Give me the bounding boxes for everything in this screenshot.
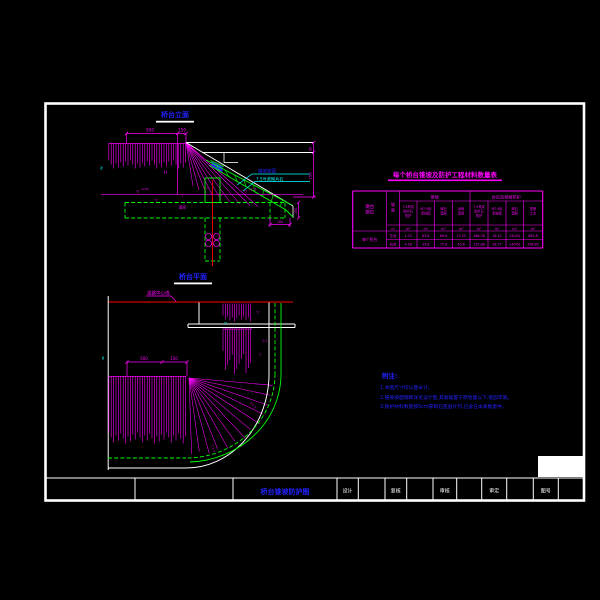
table-value: 15.35	[456, 234, 465, 238]
note-line-1: 1.本图尺寸均以厘米计。	[380, 384, 433, 391]
plan-title-underline	[174, 283, 212, 285]
th-group2: 台后及锥坡防护	[492, 194, 521, 201]
table-value: 14(45)	[509, 234, 520, 238]
plan-view: 桥台平面 道路中心线 500 150	[100, 272, 296, 470]
table-value: 125.88	[473, 242, 485, 246]
th-position: 墩台部位	[365, 203, 374, 216]
table-value: 18.12	[492, 234, 501, 238]
footing-label: 基底	[179, 205, 186, 210]
elevation-title-underline	[156, 121, 194, 123]
plan-break-mark: ≈	[100, 356, 106, 360]
th-sub1-0: 7.5号浆砌片石防护	[402, 204, 414, 218]
row0-side: 左台	[390, 233, 397, 238]
table-value: 4.58	[405, 242, 412, 246]
table-value: 166.38	[473, 234, 485, 238]
field-sheetno: 图号	[541, 489, 551, 495]
dim-right-lower: 250	[308, 172, 313, 180]
level-mid-symbol: ▽	[181, 193, 184, 197]
dim-right-upper: 90	[309, 147, 313, 151]
table-value: 75.8	[440, 242, 447, 246]
table-value: 28.77	[492, 242, 501, 246]
elevation-view: 桥台立面 500 150 H 锥坡坡面 7.5号浆砌片石	[98, 110, 316, 266]
plan-ratio-lower: 1:1.5	[210, 444, 216, 453]
field-design: 设计	[342, 488, 352, 495]
unit-3: m³	[459, 227, 464, 231]
unit-6: m³	[512, 227, 517, 231]
break-mark-left: ≈	[98, 166, 104, 170]
th-sub1-1: M7.5砂浆抹面	[420, 206, 432, 215]
table-title-underline	[388, 180, 502, 182]
cad-sheet: 桥台锥坡防护图 设计 复核 审核 审定 图号 桥台立面 500 150 H	[0, 0, 600, 600]
field-check: 复核	[391, 488, 401, 495]
level-right-value: 10.25	[249, 188, 257, 192]
th-slope: 坡度	[391, 201, 395, 213]
unit-2: m³	[441, 227, 446, 231]
corner-block	[538, 456, 583, 477]
plan-ratio-mid: 1:1.5	[249, 401, 257, 410]
plan-leader-label: 道路中心线	[147, 290, 170, 297]
table-value: 65.8	[422, 234, 429, 238]
th-sub2-3: 挖基土方	[530, 206, 537, 215]
plan-hatch-mid	[223, 329, 251, 374]
row-label: 每个桥台	[362, 237, 377, 242]
th-sub1-2: 碎石垫层	[440, 206, 446, 215]
plan-corner-symbol: ▽	[224, 321, 228, 326]
table-value: 35.8	[422, 242, 429, 246]
unit-7: m³	[531, 227, 536, 231]
dim-height: H	[164, 170, 167, 176]
level-left-value: 12.50	[142, 187, 150, 191]
dim-toe-vertical: 150	[294, 208, 298, 214]
table-value: 69.8	[440, 234, 447, 238]
field-approve: 审定	[489, 488, 499, 495]
unit-1: m³	[423, 227, 428, 231]
plan-dim-right: 150	[170, 356, 178, 361]
unit-0: m³	[406, 227, 411, 231]
th-sub1-3: 砂砾垫层	[458, 206, 465, 215]
th-group1: 锥坡	[431, 194, 440, 201]
level-right-symbol: ▽	[244, 189, 248, 194]
notes-heading: 附注:	[382, 371, 398, 380]
plan-edge-symbol-2: ▽	[259, 353, 262, 357]
material-table: 每个桥台锥坡及防护工程材料数量表 墩台部位 坡度 锥坡 台后及锥坡防护 7.5号…	[353, 170, 543, 248]
table-value: 885.8	[528, 234, 537, 238]
unit-4: m³	[477, 227, 482, 231]
dim-top-right: 150	[178, 128, 186, 133]
table-value: 358.85	[527, 242, 539, 246]
plan-ratio-upper: 1:1	[262, 339, 267, 343]
plan-hatch-upper	[223, 304, 251, 322]
table-title: 每个桥台锥坡及防护工程材料数量表	[393, 170, 498, 179]
th-sub2-2: 碎石垫层	[512, 206, 518, 215]
plan-dim-left: 500	[140, 356, 148, 361]
label-slope-material: 7.5号浆砌片石	[256, 176, 284, 183]
dim-toe-horizontal: 100	[277, 220, 283, 224]
plan-hatch-cone	[109, 377, 186, 444]
th-sub2-0: 7.5号浆砌片石防护	[473, 204, 485, 218]
title-block: 桥台锥坡防护图 设计 复核 审核 审定 图号	[46, 478, 584, 501]
th-sub2-1: M7.5砂浆抹面	[491, 206, 503, 215]
table-value: 14(45)	[509, 242, 520, 246]
elevation-hatch	[109, 144, 186, 169]
notes: 附注: 1.本图尺寸均以厘米计。 2.锥坡坡面铺砌详见设计图,其基础置于原地面以…	[380, 371, 512, 410]
unit-slope: m	[391, 227, 395, 231]
elevation-title: 桥台立面	[161, 110, 189, 119]
drawing-title: 桥台锥坡防护图	[261, 487, 310, 496]
plan-edge-symbol: ▽	[257, 311, 260, 315]
footing-level-symbol: ▽	[155, 199, 158, 203]
note-line-3: 3.防护材料数量按5cm厚碎石垫层计列,已含在本表数量中。	[380, 403, 507, 410]
fan-label-b: 1:1	[218, 191, 224, 197]
table-value: 45.8	[458, 242, 465, 246]
note-line-2: 2.锥坡坡面铺砌详见设计图,其基础置于原地面以下,嵌固牢靠。	[380, 394, 512, 401]
unit-5: m³	[495, 227, 500, 231]
label-slope-surface: 锥坡坡面	[258, 168, 276, 175]
table-value: 1.25	[405, 234, 412, 238]
plan-title: 桥台平面	[179, 272, 207, 281]
dim-top-left: 500	[146, 128, 154, 133]
field-review: 审核	[440, 488, 450, 495]
level-left-symbol: ▽	[137, 189, 141, 194]
row1-side: 右台	[390, 241, 397, 246]
